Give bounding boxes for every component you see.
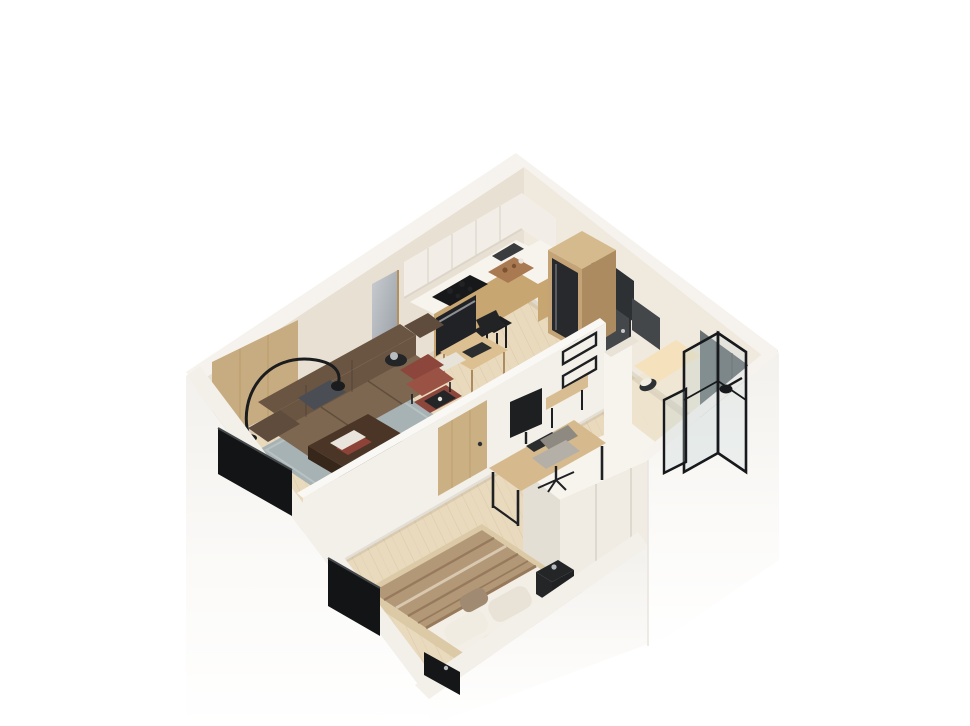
- burner: [456, 294, 461, 299]
- shower-head: [720, 385, 733, 394]
- shower-glass-left: [684, 333, 718, 472]
- lamp-shade: [331, 381, 345, 391]
- tray-cup: [438, 397, 442, 401]
- burner: [447, 288, 453, 294]
- media-box-knob: [444, 666, 448, 670]
- burner: [459, 281, 465, 287]
- food-item: [512, 264, 516, 268]
- floorplan-render: [0, 0, 970, 726]
- burner: [468, 287, 473, 292]
- nightstand-lamp: [551, 564, 556, 569]
- shower-glass-right: [718, 333, 746, 472]
- side-table-bowl: [390, 352, 398, 360]
- render-canvas: [0, 0, 970, 726]
- cup: [518, 258, 523, 263]
- bedroom-door-handle: [478, 442, 482, 446]
- shower-glass-door: [664, 389, 686, 473]
- entry-door-handle: [621, 329, 625, 333]
- food-item: [502, 267, 507, 272]
